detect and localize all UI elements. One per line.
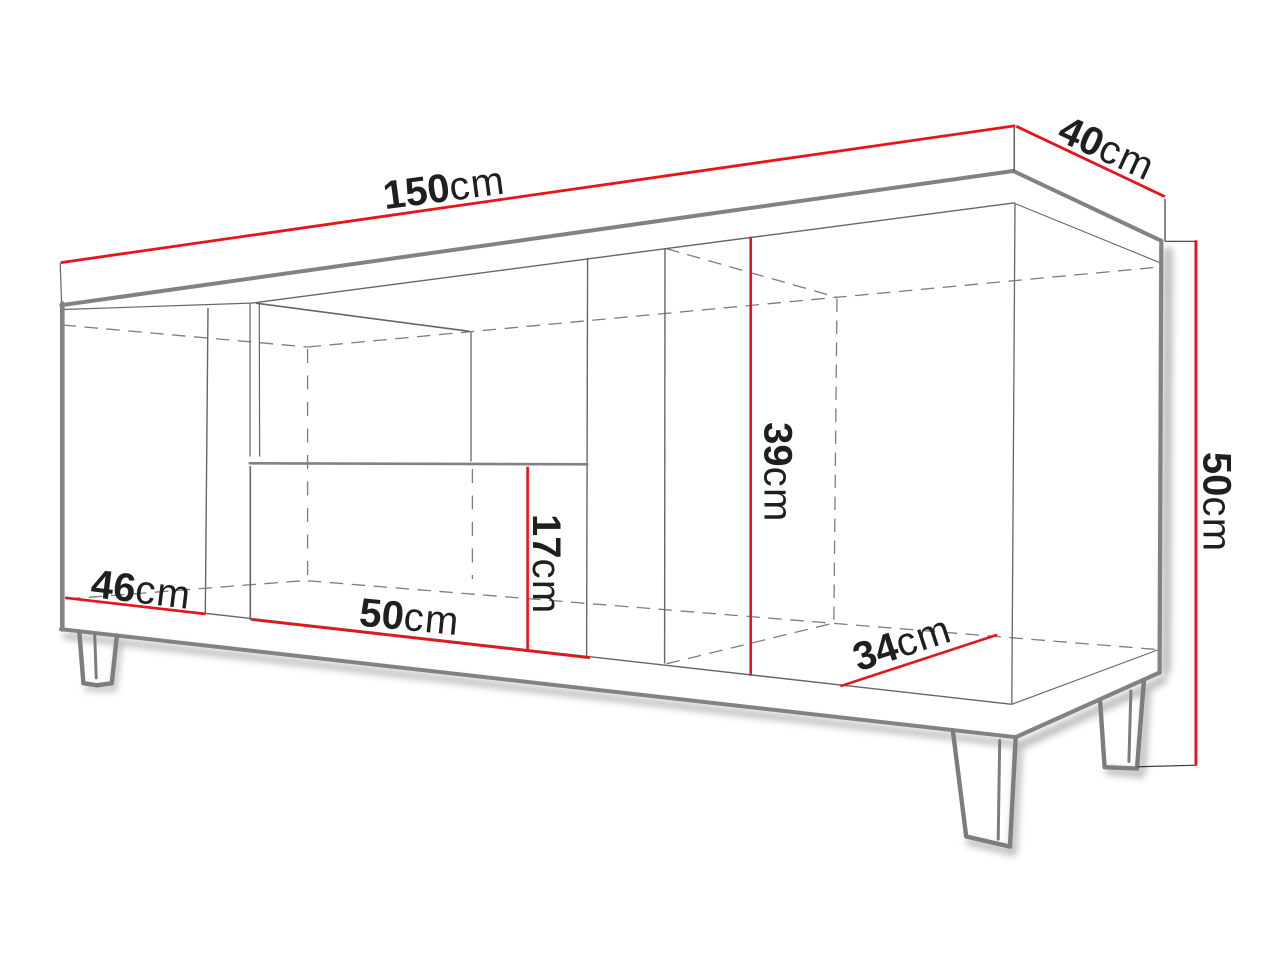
- svg-text:50cm: 50cm: [1194, 452, 1238, 553]
- svg-text:39cm: 39cm: [755, 422, 799, 523]
- svg-text:17cm: 17cm: [524, 514, 568, 615]
